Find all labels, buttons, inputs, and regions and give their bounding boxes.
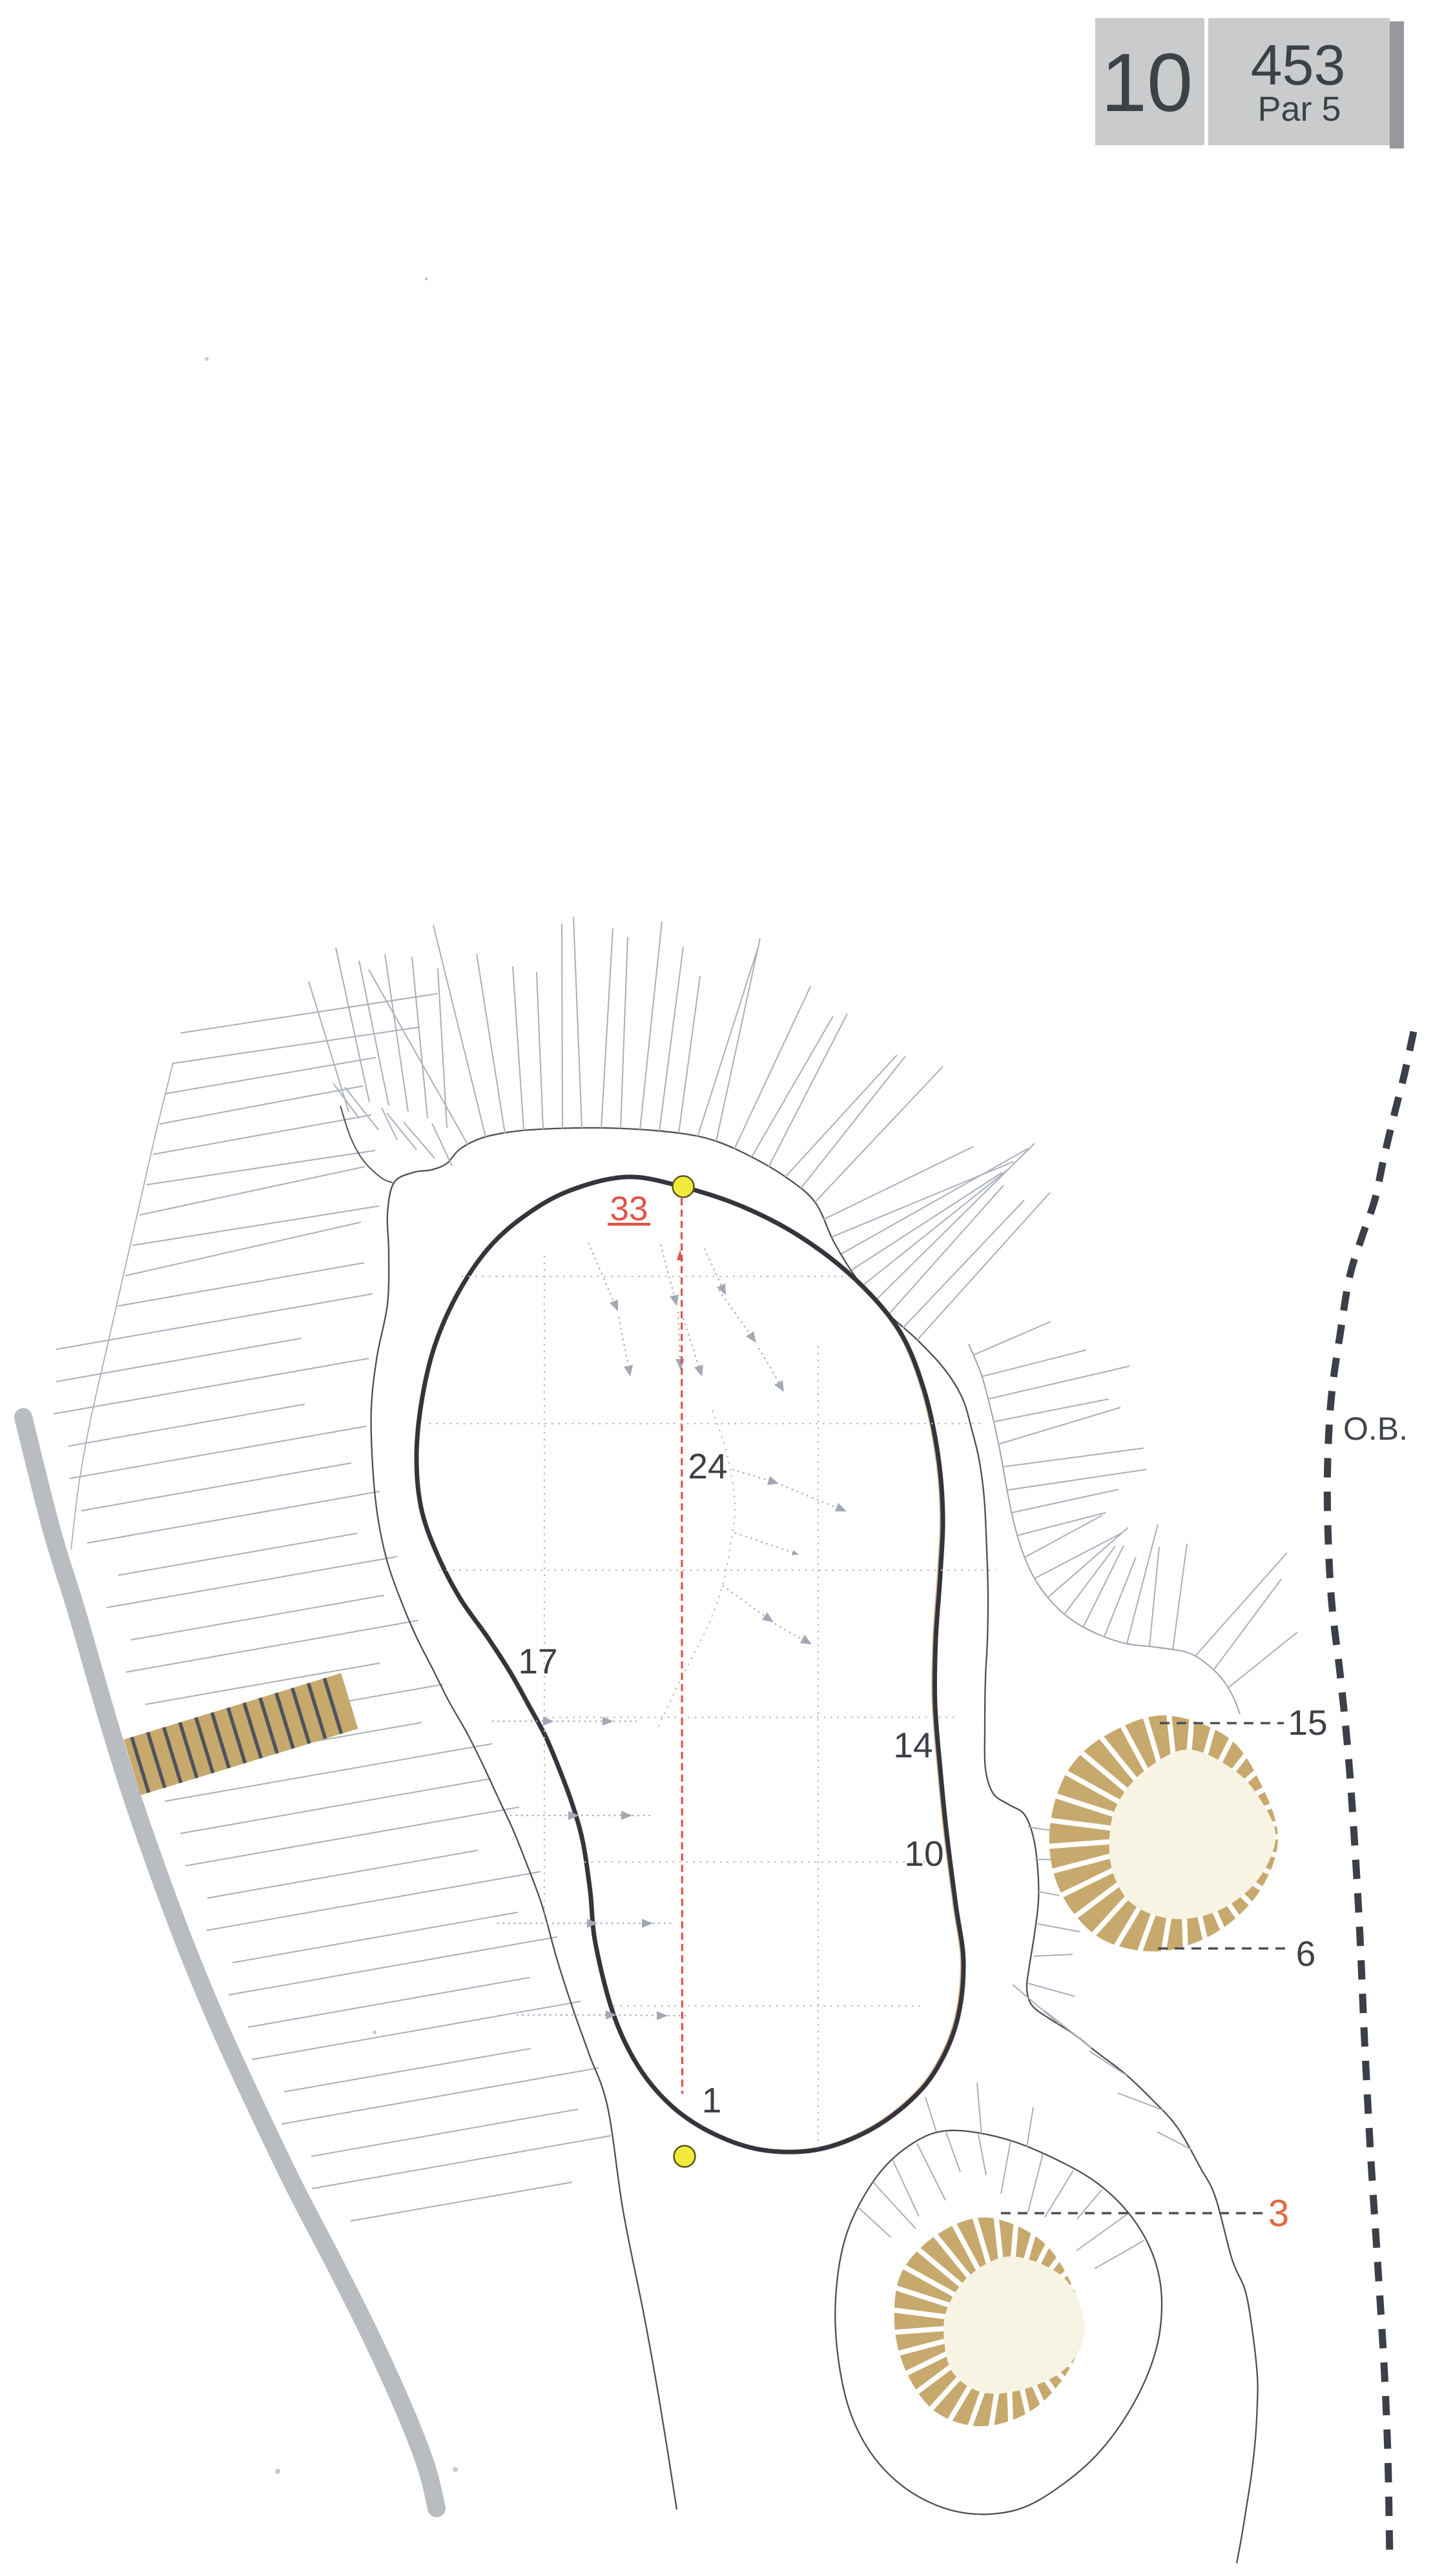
svg-text:O.B.: O.B.: [1343, 1411, 1408, 1447]
svg-text:24: 24: [688, 1446, 727, 1486]
svg-text:10: 10: [1101, 37, 1193, 129]
svg-text:33: 33: [610, 1190, 648, 1228]
svg-text:453: 453: [1251, 33, 1346, 97]
svg-text:3: 3: [1268, 2193, 1289, 2234]
svg-text:10: 10: [904, 1834, 943, 1874]
svg-text:6: 6: [1296, 1934, 1316, 1974]
svg-text:15: 15: [1288, 1702, 1327, 1743]
svg-text:14: 14: [893, 1725, 933, 1765]
svg-text:17: 17: [518, 1641, 557, 1681]
svg-text:Par 5: Par 5: [1257, 90, 1341, 128]
svg-text:1: 1: [702, 2080, 722, 2120]
